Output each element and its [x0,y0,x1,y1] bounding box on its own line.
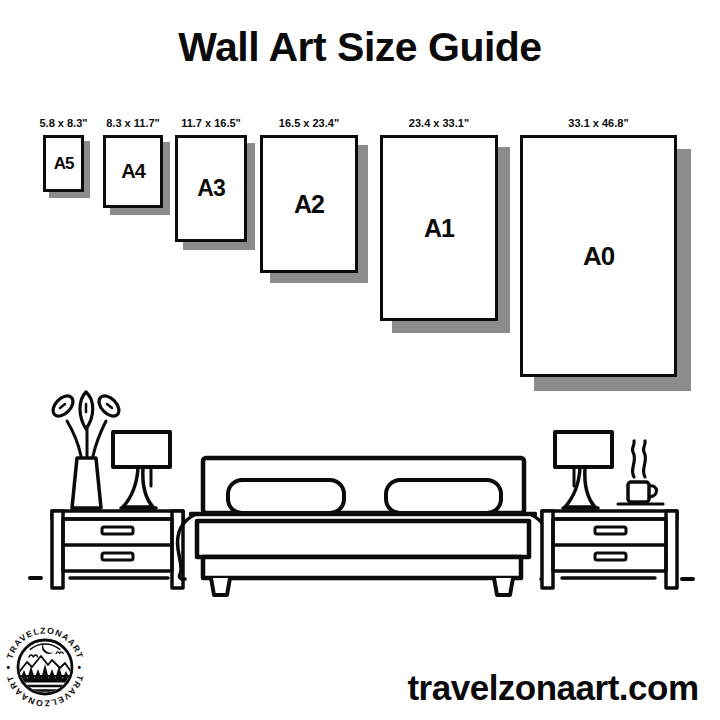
logo-separator-left: • [7,662,11,673]
bird-icon [56,652,63,654]
lamp-left-icon [113,432,170,508]
nightstand-right-icon [542,511,677,588]
website-url: travelzonaart.com [402,668,704,708]
size-dimensions-label: 23.4 x 33.1" [409,117,469,129]
size-dimensions-label: 5.8 x 8.3" [39,117,87,129]
paper-size-name: A3 [197,175,224,202]
paper-a2: A2 [260,135,358,273]
logo-separator-right: • [78,662,82,673]
bed-leg-right [494,578,513,595]
nightstand-left-icon [52,511,183,588]
paper-a5: A5 [43,135,84,192]
size-dimensions-label: 16.5 x 23.4" [279,117,339,129]
paper-size-name: A5 [54,154,74,174]
paper-a1: A1 [380,135,498,321]
paper-a0: A0 [520,135,677,377]
bed-icon [178,458,549,595]
bedroom-illustration [0,375,720,605]
bird-icon [29,655,38,657]
paper-size-name: A0 [583,241,614,272]
brand-logo: TRAVELZONAART TRAVELZONAART • • [0,620,95,718]
bed-leg-left [211,578,230,595]
paper-a4: A4 [103,135,163,208]
logo-ring-text-top: TRAVELZONAART [5,625,86,660]
size-dimensions-label: 33.1 x 46.8" [568,117,628,129]
paper-size-name: A4 [121,160,145,183]
pillow-right-icon [386,480,501,513]
lamp-right-icon [555,432,612,508]
page-title: Wall Art Size Guide [0,24,720,71]
logo-arc [30,644,60,649]
size-dimensions-label: 11.7 x 16.5" [181,117,241,129]
wall-art-size-guide-poster: Wall Art Size Guide 5.8 x 8.3" A5 8.3 x … [0,0,720,720]
paper-size-name: A2 [294,190,324,219]
pillow-left-icon [228,480,344,513]
coffee-cup-icon [618,441,663,504]
paper-a3: A3 [175,135,247,242]
size-dimensions-label: 8.3 x 11.7" [106,117,160,129]
paper-size-name: A1 [424,214,454,243]
